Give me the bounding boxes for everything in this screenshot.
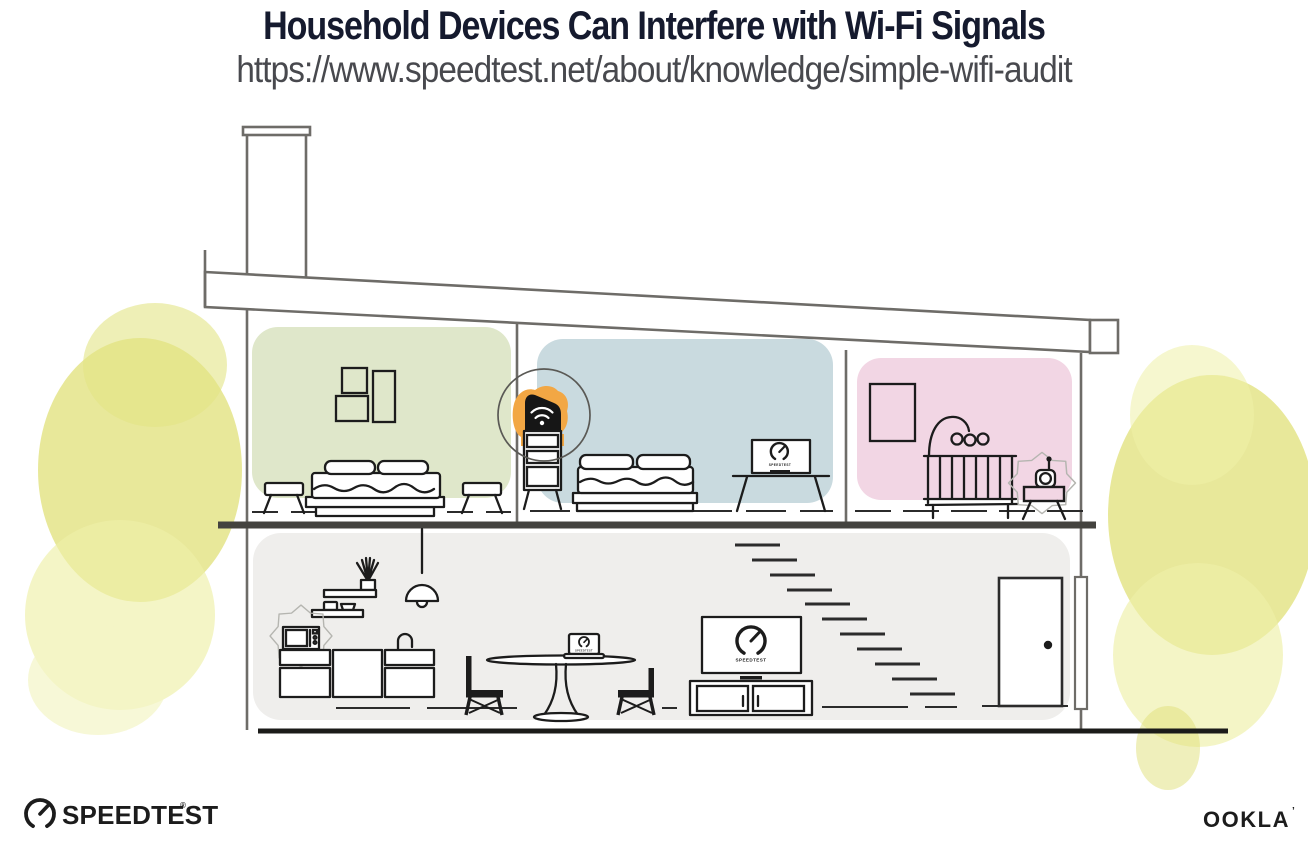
cabinet-door <box>280 668 330 697</box>
downpipe <box>1075 577 1087 709</box>
table-top <box>487 656 635 665</box>
tv-stand-base <box>770 470 790 473</box>
ookla-logo: OOKLA ’ <box>1203 806 1295 832</box>
door-knob <box>1044 641 1052 649</box>
infographic-canvas: Household Devices Can Interfere with Wi-… <box>0 0 1308 861</box>
header: Household Devices Can Interfere with Wi-… <box>0 0 1308 91</box>
bed-base <box>316 507 434 516</box>
tv-stand-base <box>740 676 762 680</box>
speedtest-wordmark: SPEEDTEST <box>62 800 218 830</box>
door-panel <box>999 578 1062 706</box>
bush-blob <box>1113 563 1283 747</box>
bed-base <box>577 503 693 511</box>
tv-screen-label: SPEEDTEST <box>769 463 792 467</box>
pillow <box>378 461 428 474</box>
stool-leg <box>495 495 502 513</box>
stool-leg <box>264 495 271 513</box>
microwave <box>283 627 319 649</box>
laptop-screen-label: SPEEDTEST <box>575 650 593 653</box>
pillow <box>325 461 375 474</box>
tv-screen <box>752 440 810 473</box>
foliage-right <box>1108 345 1308 790</box>
cabinet-door <box>333 650 382 697</box>
chimney-cap <box>243 127 310 135</box>
bed-platform <box>573 493 697 503</box>
cabinet-door <box>385 668 434 697</box>
ookla-wordmark: OOKLA <box>1203 807 1290 832</box>
cabinet-drawer <box>385 650 434 665</box>
tv-screen-label: SPEEDTEST <box>736 658 767 663</box>
bush-blob <box>1136 706 1200 790</box>
page-title: Household Devices Can Interfere with Wi-… <box>98 4 1210 48</box>
table-base <box>534 713 588 721</box>
stool-top <box>265 483 303 495</box>
living-room-tv: SPEEDTEST <box>690 617 812 715</box>
roof-end-cap <box>1090 320 1118 353</box>
laptop-base <box>564 654 604 658</box>
chair-seat <box>618 690 654 698</box>
bed <box>306 461 444 516</box>
chair-seat <box>466 690 503 698</box>
crib-base <box>926 504 1018 505</box>
speedtest-logo: SPEEDTEST ® <box>26 800 218 830</box>
pillow <box>637 455 690 469</box>
pillow <box>580 455 633 469</box>
laptop: SPEEDTEST <box>564 634 604 658</box>
page-url: https://www.speedtest.net/about/knowledg… <box>65 50 1242 91</box>
lamp-bulb <box>417 602 427 607</box>
house-illustration: SPEEDTEST <box>0 0 1308 861</box>
cup <box>324 602 337 610</box>
speedtest-gauge-icon <box>26 800 54 826</box>
cabinet-drawer <box>280 650 330 665</box>
monitor-antenna-tip <box>1046 456 1051 461</box>
trademark-tick: ’ <box>1292 806 1295 817</box>
shelf <box>324 590 376 597</box>
chair-back <box>466 656 472 694</box>
dresser-leg <box>524 490 529 509</box>
stool-top <box>463 483 501 495</box>
registered-mark-icon: ® <box>180 801 186 810</box>
front-door <box>999 578 1062 706</box>
chimney <box>247 134 306 279</box>
foliage-left <box>25 303 242 735</box>
plant-pot <box>361 580 375 590</box>
bush-blob <box>1130 345 1254 485</box>
side-table-top <box>1024 487 1064 501</box>
bush-blob <box>83 303 227 427</box>
bush-blob <box>28 625 168 735</box>
